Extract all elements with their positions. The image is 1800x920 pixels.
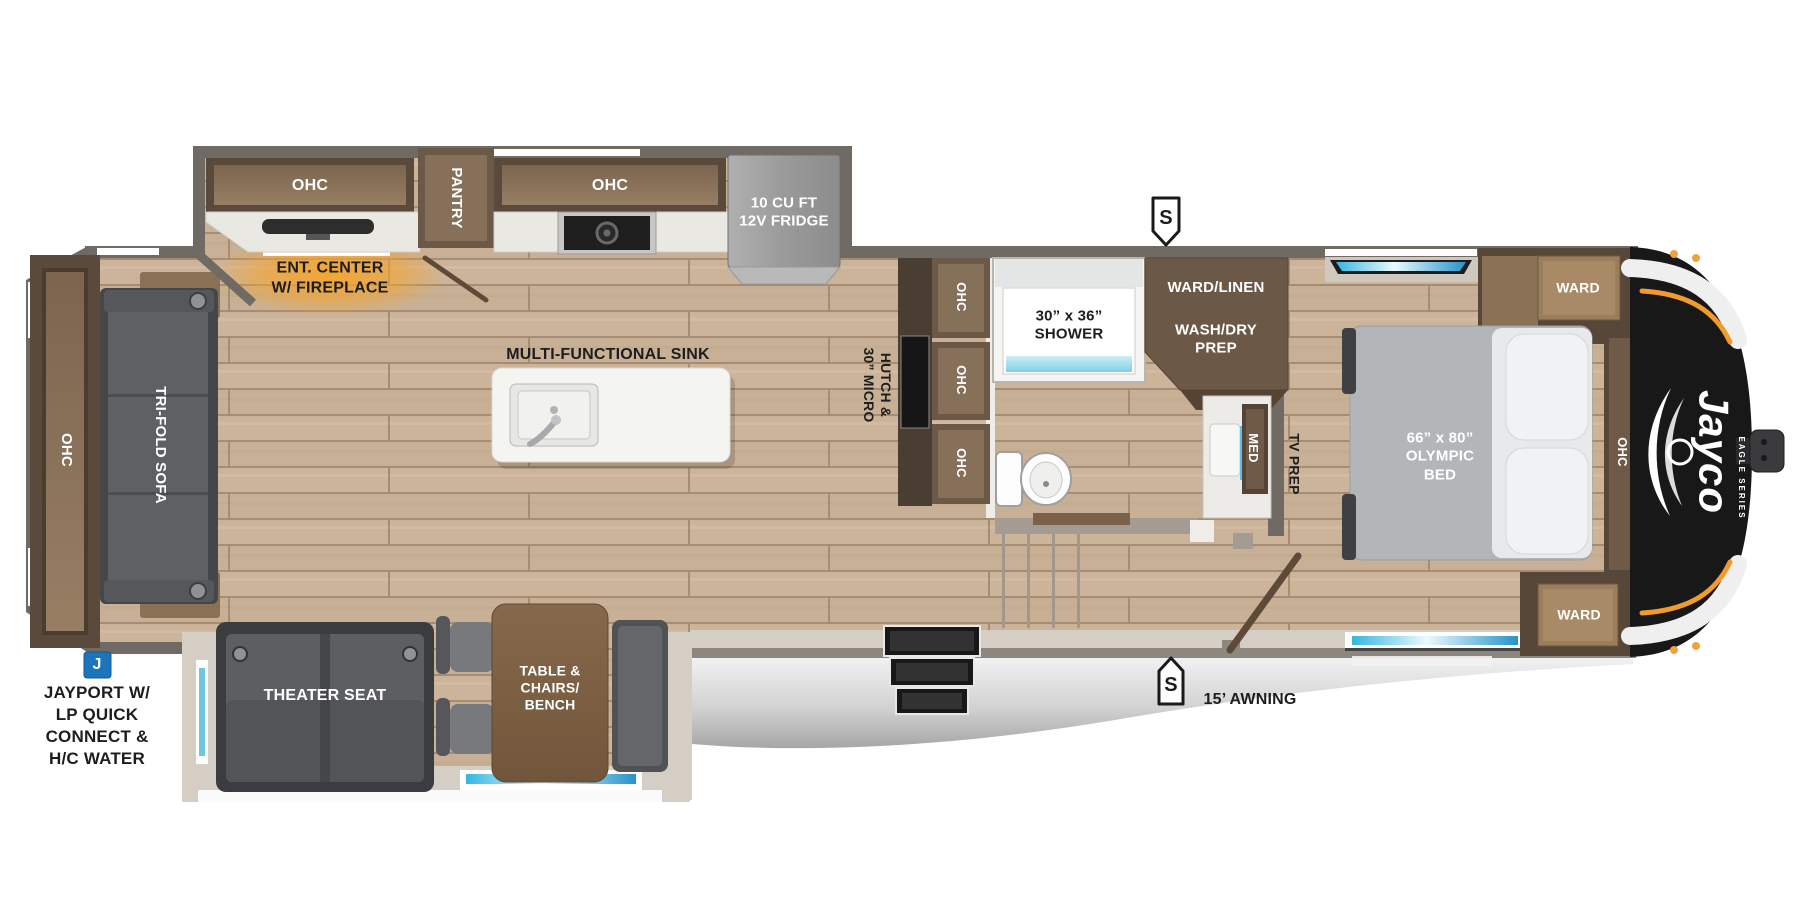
shower-label: 30” x 36” SHOWER: [1035, 308, 1104, 345]
kitchen-counter: [494, 212, 730, 254]
bedroom-ohc-label: OHC: [1614, 437, 1630, 467]
toilet: [996, 452, 1071, 506]
microwave: [901, 336, 929, 428]
floorplan-page: OHC TRI-FOLD SOFA OHC ENT. CENTER W/ FIR…: [0, 0, 1800, 920]
s-marker-bottom-label: S: [1164, 673, 1178, 697]
dinette-bench: [612, 620, 668, 772]
ward-linen-label: WARD/LINEN: [1168, 279, 1265, 297]
s-marker-top-label: S: [1159, 206, 1173, 230]
awning-roll: [1352, 656, 1492, 666]
vanity-sink: [1210, 424, 1240, 476]
pillow: [1506, 334, 1588, 440]
dinette-label: TABLE & CHAIRS/ BENCH: [519, 662, 580, 713]
bedroom-top-rail: [1325, 249, 1477, 256]
ohc-stack-label-1: OHC: [953, 282, 969, 312]
bath-step-rail: [1033, 513, 1130, 525]
pantry-label: PANTRY: [447, 167, 465, 228]
sofa-label: TRI-FOLD SOFA: [151, 386, 169, 504]
fridge-label: 10 CU FT 12V FRIDGE: [739, 195, 829, 232]
ward-bottom-label: WARD: [1557, 606, 1601, 623]
kitchen-ohc-left-label: OHC: [292, 176, 328, 196]
med-label: MED: [1245, 433, 1261, 463]
rear-ohc-label: OHC: [57, 433, 75, 467]
floorplan-drawing: [0, 0, 1800, 920]
entry-steps: [884, 626, 980, 714]
bed-label: 66” x 80” OLYMPIC BED: [1406, 430, 1474, 485]
jayco-series: EAGLE SERIES: [1736, 436, 1746, 519]
theater-seat-label: THEATER SEAT: [264, 686, 387, 706]
jayport-badge-label: J: [92, 655, 101, 675]
ward-top-label: WARD: [1556, 279, 1600, 296]
pillow: [1506, 448, 1588, 554]
kitchen-slideout-left-wall: [193, 146, 205, 258]
ohc-stack-label-2: OHC: [953, 365, 969, 395]
wash-dry-label: WASH/DRY PREP: [1175, 322, 1257, 359]
tv: [262, 219, 374, 234]
hutch-micro: [898, 258, 932, 506]
awning-label: 15’ AWNING: [1204, 690, 1297, 710]
jayport-label: JAYPORT W/ LP QUICK CONNECT & H/C WATER: [44, 682, 150, 770]
kitchen-slideout-right-wall: [840, 146, 852, 258]
ent-center-label: ENT. CENTER W/ FIREPLACE: [271, 258, 388, 297]
kitchen-ohc-right-label: OHC: [592, 176, 628, 196]
tv-prep-label: TV PREP: [1285, 433, 1302, 494]
hutch-label: HUTCH & 30” MICRO: [860, 348, 894, 423]
kitchen-island: [492, 368, 735, 469]
theater-seat: [216, 622, 434, 792]
ohc-stack-label-3: OHC: [953, 448, 969, 478]
island-label: MULTI-FUNCTIONAL SINK: [506, 345, 710, 365]
jayco-logo: Jayco: [1688, 390, 1739, 514]
